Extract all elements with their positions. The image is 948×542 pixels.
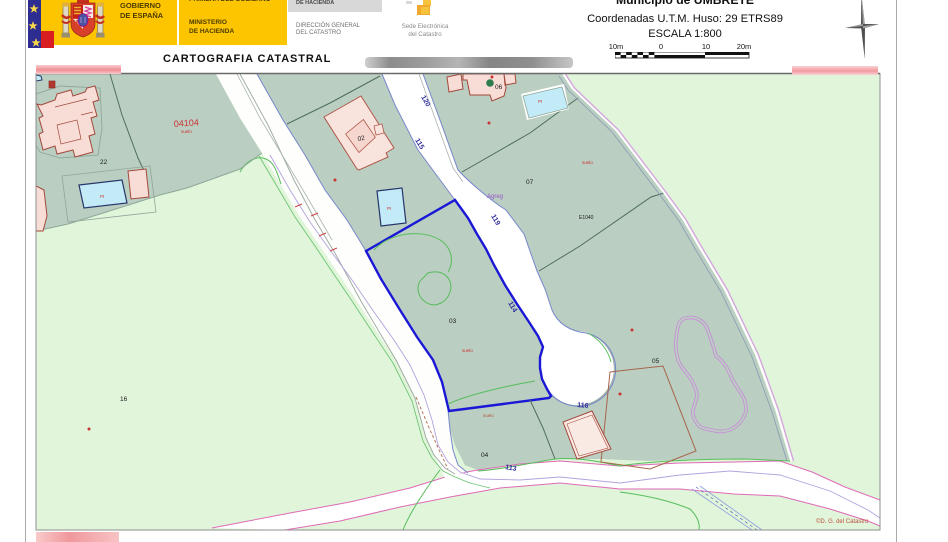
svg-text:PI: PI [387,206,391,211]
svg-text:suelo: suelo [181,129,192,134]
svg-text:suelo: suelo [582,160,593,165]
svg-text:03: 03 [449,318,457,325]
svg-text:07: 07 [526,179,534,186]
svg-text:04104: 04104 [173,117,199,129]
svg-text:PI: PI [538,99,542,104]
svg-text:E1040: E1040 [579,215,594,221]
svg-text:suelo: suelo [483,413,494,418]
svg-text:©D. G. del Catastro: ©D. G. del Catastro [816,518,869,525]
svg-text:05: 05 [652,358,660,365]
svg-text:suelo: suelo [462,348,473,353]
svg-text:Agreg: Agreg [487,194,503,200]
svg-text:PI: PI [100,194,104,199]
svg-text:22: 22 [100,159,108,166]
svg-text:06: 06 [495,84,503,91]
svg-text:04: 04 [481,452,489,459]
svg-text:16: 16 [120,396,128,403]
svg-text:116: 116 [577,402,589,410]
